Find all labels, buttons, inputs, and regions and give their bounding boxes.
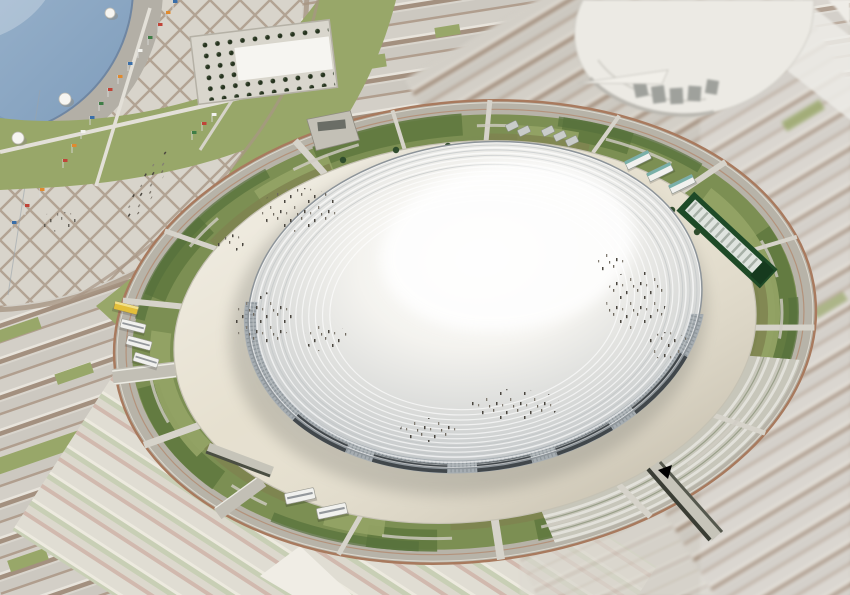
canopy-tent xyxy=(105,8,115,18)
aerial-rendering xyxy=(0,0,850,595)
canopy-tent xyxy=(12,132,24,144)
canopy-tent xyxy=(59,93,71,105)
rendering-canvas xyxy=(0,0,850,595)
